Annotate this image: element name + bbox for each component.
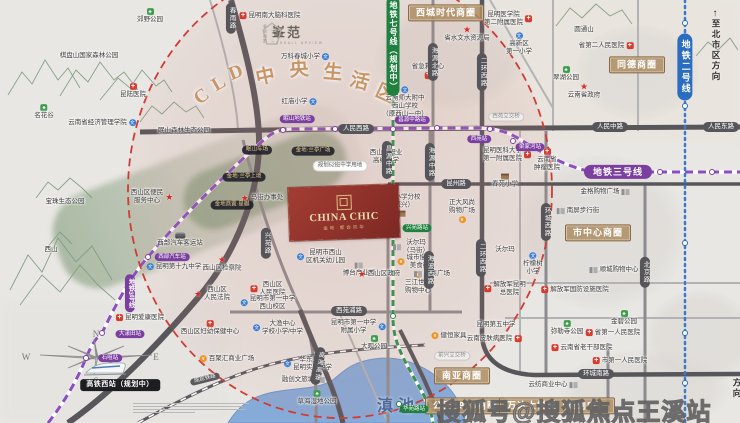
location-map: N S W E CLD中央生活区 CHINA CHIC 金地·都会风华 金地商置… (0, 0, 740, 423)
project-marker-china-chic: CHINA CHIC 金地·都会风华 (288, 184, 400, 241)
diamond-logo-icon (262, 22, 282, 46)
disclaimer-text-block (133, 403, 249, 415)
north-arrow-icon: ↑ (713, 8, 720, 19)
direction-south: 至南市区方向 (731, 378, 740, 423)
train-icon (82, 360, 128, 378)
compass-e: E (153, 352, 159, 362)
project-name-en: CHINA CHIC (309, 210, 379, 223)
project-name-cn: 金地·都会风华 (323, 224, 366, 231)
compass-w: W (22, 352, 31, 362)
project-logo-icon (336, 194, 352, 210)
lake-label: 滇池 (377, 392, 419, 416)
compass-rose: N S W E (20, 328, 172, 388)
compass-n: N (93, 329, 100, 339)
direction-north: ↑至北市区方向 (710, 8, 722, 82)
developer-logo: 金地商置 峯范 CENSALL UPVIEW (262, 22, 324, 45)
watermark: 搜狐号@搜狐焦点王溪站 (437, 392, 711, 423)
